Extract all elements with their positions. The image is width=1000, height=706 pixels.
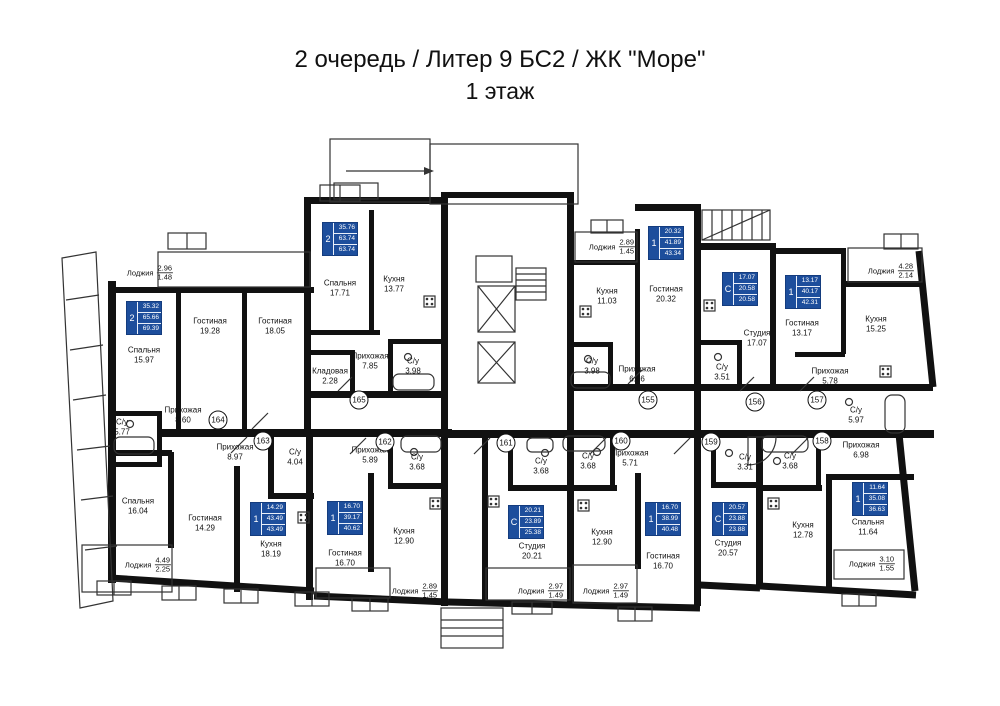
loggia-areas: 2.891.45: [618, 238, 635, 256]
room-label: Спальня11.64: [852, 517, 884, 536]
room-name: Кухня: [260, 539, 281, 549]
room-name: С/у: [114, 417, 130, 427]
room-area: 18.19: [260, 549, 281, 559]
room-area: 3.68: [580, 461, 596, 471]
stove: [880, 366, 891, 377]
room-area: 15.25: [865, 324, 886, 334]
room-area: 11.64: [852, 527, 884, 537]
room-name: Кухня: [393, 526, 414, 536]
loggia-areas: 2.971.49: [547, 582, 564, 600]
room-name: С/у: [533, 456, 549, 466]
room-label: Прихожая6.56: [618, 364, 655, 383]
room-label: С/у3.68: [409, 452, 425, 471]
room-name: Прихожая: [811, 366, 848, 376]
total-area: 23.88: [724, 525, 747, 535]
apartment-room-count: 1: [853, 483, 864, 515]
apartment-info-box-158: 111.6435.0836.63: [853, 483, 887, 515]
apartment-info-box-157: 113.1740.1742.31: [786, 276, 820, 308]
floor-area: 20.58: [734, 284, 757, 295]
room-label: Кухня12.78: [792, 520, 813, 539]
room-label: С/у3.68: [580, 451, 596, 470]
room-label: С/у3.98: [405, 356, 421, 375]
room-label: Кухня12.90: [393, 526, 414, 545]
room-label: Кладовая2.28: [312, 366, 348, 385]
room-area: 18.05: [258, 326, 292, 336]
living-area: 14.29: [262, 503, 285, 514]
floor-plan-page: 2 очередь / Литер 9 БС2 / ЖК "Море" 1 эт…: [0, 0, 1000, 706]
door-leaf: [252, 413, 268, 429]
wc-core: [476, 256, 512, 282]
room-area: 5.89: [351, 455, 388, 465]
room-area: 3.68: [533, 466, 549, 476]
room-name: Студия: [715, 538, 742, 548]
apartment-number-165: 165: [350, 391, 369, 410]
room-area: 3.68: [409, 462, 425, 472]
loggia-label: Лоджия4.492.25: [125, 556, 171, 574]
living-area: 13.17: [797, 276, 820, 287]
loggia-name: Лоджия: [518, 587, 545, 596]
apartment-number-156: 156: [746, 393, 765, 412]
room-label: Прихожая5.78: [811, 366, 848, 385]
room-name: Кухня: [591, 527, 612, 537]
living-area: 20.21: [520, 506, 543, 517]
room-name: С/у: [287, 447, 303, 457]
room-label: Прихожая8.60: [164, 405, 201, 424]
bathtub: [401, 436, 441, 452]
living-area: 20.57: [724, 503, 747, 514]
loggia-outline: [158, 252, 310, 287]
loggia-name: Лоджия: [392, 587, 419, 596]
loggia-name: Лоджия: [125, 561, 152, 570]
room-name: Кухня: [383, 274, 404, 284]
room-area: 6.98: [842, 450, 879, 460]
door-leaf: [674, 438, 690, 454]
room-label: Гостиная19.28: [193, 316, 227, 335]
loggia-label: Лоджия3.101.55: [849, 555, 895, 573]
room-area: 20.21: [519, 551, 546, 561]
floor-area: 43.49: [262, 514, 285, 525]
room-label: Кухня15.25: [865, 314, 886, 333]
room-area: 19.28: [193, 326, 227, 336]
room-name: Кухня: [596, 286, 617, 296]
apartment-info-box-161: С20.2123.8925.38: [509, 506, 543, 538]
bathtub: [885, 395, 905, 433]
loggia-areas: 4.492.25: [154, 556, 171, 574]
room-area: 3.98: [584, 366, 600, 376]
apartment-areas: 20.5723.8823.88: [724, 503, 747, 535]
apartment-info-box-160: 116.7038.9940.48: [646, 503, 680, 535]
apartment-room-count: 1: [328, 502, 339, 534]
stove: [488, 496, 499, 507]
apartment-areas: 16.7039.1740.62: [339, 502, 362, 534]
apartment-room-count: 1: [786, 276, 797, 308]
room-label: С/у3.98: [584, 356, 600, 375]
room-area: 13.17: [785, 328, 819, 338]
room-label: Прихожая8.97: [216, 442, 253, 461]
room-name: Гостиная: [785, 318, 819, 328]
apartment-room-count: С: [723, 273, 734, 305]
loggia-areas: 2.961.48: [156, 264, 173, 282]
floor-area: 38.99: [657, 514, 680, 525]
plan-title-line1: 2 очередь / Литер 9 БС2 / ЖК "Море": [0, 44, 1000, 76]
room-name: Студия: [519, 541, 546, 551]
room-area: 20.57: [715, 548, 742, 558]
apartment-areas: 11.6435.0836.63: [864, 483, 887, 515]
room-name: Прихожая: [618, 364, 655, 374]
living-area: 35.32: [138, 302, 161, 313]
room-area: 20.32: [649, 294, 683, 304]
sink: [715, 354, 722, 361]
room-area: 13.77: [383, 284, 404, 294]
loggia-name: Лоджия: [127, 269, 154, 278]
room-area: 5.78: [811, 376, 848, 386]
room-label: Прихожая6.98: [842, 440, 879, 459]
total-area: 40.48: [657, 525, 680, 535]
room-area: 3.98: [405, 366, 421, 376]
floor-area: 40.17: [797, 287, 820, 298]
floor-area: 41.89: [660, 238, 683, 249]
apartment-areas: 13.1740.1742.31: [797, 276, 820, 308]
floor-area: 63.74: [334, 234, 357, 245]
total-area: 25.38: [520, 528, 543, 538]
loggia-label: Лоджия2.891.45: [589, 238, 635, 256]
room-name: Прихожая: [351, 351, 388, 361]
room-label: С/у4.04: [287, 447, 303, 466]
room-name: Спальня: [122, 496, 154, 506]
room-area: 3.68: [782, 461, 798, 471]
room-label: С/у3.51: [714, 362, 730, 381]
room-name: С/у: [714, 362, 730, 372]
apartment-areas: 17.0720.5820.58: [734, 273, 757, 305]
room-label: Гостиная20.32: [649, 284, 683, 303]
living-area: 16.70: [657, 503, 680, 514]
apartment-areas: 35.7663.7463.74: [334, 223, 357, 255]
room-name: Спальня: [324, 278, 356, 288]
room-name: Кухня: [792, 520, 813, 530]
room-label: Спальня16.04: [122, 496, 154, 515]
room-label: С/у3.68: [782, 451, 798, 470]
loggia-area-half: 1.49: [547, 592, 564, 600]
left-balcony-strip: [62, 252, 113, 608]
living-area: 16.70: [339, 502, 362, 513]
room-area: 5.71: [611, 458, 648, 468]
room-area: 5.77: [114, 427, 130, 437]
apartment-info-box-165: 235.7663.7463.74: [323, 223, 357, 255]
room-label: Гостиная13.17: [785, 318, 819, 337]
apartment-room-count: 1: [649, 227, 660, 259]
total-area: 20.58: [734, 295, 757, 305]
room-area: 5.97: [848, 415, 864, 425]
room-label: С/у3.68: [533, 456, 549, 475]
room-label: Кухня11.03: [596, 286, 617, 305]
room-area: 14.29: [188, 523, 222, 533]
loggia-name: Лоджия: [868, 267, 895, 276]
room-name: С/у: [737, 452, 753, 462]
loggia-areas: 2.971.49: [612, 582, 629, 600]
room-name: Гостиная: [258, 316, 292, 326]
bathtub: [527, 438, 553, 452]
room-name: Спальня: [128, 345, 160, 355]
apartment-room-count: 1: [646, 503, 657, 535]
apartment-number-158: 158: [813, 432, 832, 451]
loggia-area-half: 1.55: [878, 565, 895, 573]
apartment-info-box-156: С17.0720.5820.58: [723, 273, 757, 305]
living-area: 11.64: [864, 483, 887, 494]
room-name: С/у: [584, 356, 600, 366]
apartment-number-161: 161: [497, 434, 516, 453]
room-label: Прихожая7.85: [351, 351, 388, 370]
room-area: 6.56: [618, 374, 655, 384]
room-name: Спальня: [852, 517, 884, 527]
room-name: С/у: [409, 452, 425, 462]
room-label: С/у3.31: [737, 452, 753, 471]
total-area: 63.74: [334, 245, 357, 255]
room-area: 17.71: [324, 288, 356, 298]
stove: [424, 296, 435, 307]
apartment-areas: 20.3241.8943.34: [660, 227, 683, 259]
loggia-areas: 4.282.14: [897, 262, 914, 280]
room-name: Гостиная: [649, 284, 683, 294]
loggia-area-half: 1.45: [421, 592, 438, 600]
room-label: Гостиная18.05: [258, 316, 292, 335]
room-area: 2.28: [312, 376, 348, 386]
total-area: 36.63: [864, 505, 887, 515]
room-area: 4.04: [287, 457, 303, 467]
room-label: Студия20.21: [519, 541, 546, 560]
living-area: 35.76: [334, 223, 357, 234]
room-label: Кухня18.19: [260, 539, 281, 558]
loggia-label: Лоджия2.971.49: [518, 582, 564, 600]
room-name: Гостиная: [646, 551, 680, 561]
apartment-info-box-159: С20.5723.8823.88: [713, 503, 747, 535]
room-area: 11.03: [596, 296, 617, 306]
sink: [726, 450, 733, 457]
stove: [578, 500, 589, 511]
apartment-info-box-155: 120.3241.8943.34: [649, 227, 683, 259]
loggia-areas: 3.101.55: [878, 555, 895, 573]
stairs: [516, 268, 546, 300]
apartment-number-159: 159: [702, 433, 721, 452]
canopy-arrow: [424, 167, 434, 175]
floor-area: 65.66: [138, 313, 161, 324]
room-label: Прихожая5.71: [611, 448, 648, 467]
living-area: 20.32: [660, 227, 683, 238]
plan-title-line2: 1 этаж: [0, 76, 1000, 107]
room-name: Прихожая: [164, 405, 201, 415]
total-area: 69.39: [138, 324, 161, 334]
room-label: Гостиная14.29: [188, 513, 222, 532]
room-label: Спальня15.97: [128, 345, 160, 364]
stove: [580, 306, 591, 317]
room-label: Спальня17.71: [324, 278, 356, 297]
room-name: Студия: [744, 328, 771, 338]
room-name: Гостиная: [193, 316, 227, 326]
apartment-areas: 20.2123.8925.38: [520, 506, 543, 538]
stove: [768, 498, 779, 509]
apartment-areas: 16.7038.9940.48: [657, 503, 680, 535]
room-area: 7.85: [351, 361, 388, 371]
apartment-number-160: 160: [612, 432, 631, 451]
loggia-name: Лоджия: [589, 243, 616, 252]
stove: [704, 300, 715, 311]
room-name: С/у: [782, 451, 798, 461]
room-name: Гостиная: [328, 548, 362, 558]
apartment-number-164: 164: [209, 411, 228, 430]
apartment-number-155: 155: [639, 391, 658, 410]
apartment-room-count: 2: [323, 223, 334, 255]
floor-area: 39.17: [339, 513, 362, 524]
loggia-label: Лоджия2.961.48: [127, 264, 173, 282]
loggia-area-half: 1.48: [156, 274, 173, 282]
room-area: 8.60: [164, 415, 201, 425]
apartment-room-count: 2: [127, 302, 138, 334]
apartment-number-163: 163: [254, 432, 273, 451]
apartment-areas: 14.2943.4943.49: [262, 503, 285, 535]
room-label: С/у5.77: [114, 417, 130, 436]
total-area: 42.31: [797, 298, 820, 308]
room-name: Кладовая: [312, 366, 348, 376]
loggia-name: Лоджия: [849, 560, 876, 569]
room-area: 12.90: [393, 536, 414, 546]
plan-title: 2 очередь / Литер 9 БС2 / ЖК "Море" 1 эт…: [0, 44, 1000, 107]
room-name: Гостиная: [188, 513, 222, 523]
apartment-info-box-162: 116.7039.1740.62: [328, 502, 362, 534]
bathtub: [762, 436, 808, 452]
apartment-number-162: 162: [376, 433, 395, 452]
apartment-info-box-164: 235.3265.6669.39: [127, 302, 161, 334]
room-name: С/у: [848, 405, 864, 415]
loggia-label: Лоджия2.891.45: [392, 582, 438, 600]
loggia-areas: 2.891.45: [421, 582, 438, 600]
room-area: 3.51: [714, 372, 730, 382]
apartment-room-count: 1: [251, 503, 262, 535]
loggia-name: Лоджия: [583, 587, 610, 596]
loggia-area-half: 1.45: [618, 248, 635, 256]
floor-area: 23.89: [520, 517, 543, 528]
room-area: 8.97: [216, 452, 253, 462]
room-area: 12.90: [591, 537, 612, 547]
room-area: 16.70: [328, 558, 362, 568]
room-label: Кухня12.90: [591, 527, 612, 546]
room-area: 16.04: [122, 506, 154, 516]
floor-area: 23.88: [724, 514, 747, 525]
room-area: 17.07: [744, 338, 771, 348]
room-area: 3.31: [737, 462, 753, 472]
room-label: С/у5.97: [848, 405, 864, 424]
loggia-label: Лоджия2.971.49: [583, 582, 629, 600]
room-label: Студия17.07: [744, 328, 771, 347]
bathtub: [393, 374, 434, 390]
apartment-room-count: С: [509, 506, 520, 538]
apartment-number-157: 157: [808, 391, 827, 410]
total-area: 40.62: [339, 524, 362, 534]
room-name: Кухня: [865, 314, 886, 324]
room-area: 16.70: [646, 561, 680, 571]
room-label: Кухня13.77: [383, 274, 404, 293]
room-label: Студия20.57: [715, 538, 742, 557]
floor-area: 35.08: [864, 494, 887, 505]
sink: [774, 458, 781, 465]
room-name: С/у: [405, 356, 421, 366]
room-label: Гостиная16.70: [646, 551, 680, 570]
apartment-areas: 35.3265.6669.39: [138, 302, 161, 334]
thin-details: [62, 139, 922, 648]
room-name: С/у: [580, 451, 596, 461]
room-name: Прихожая: [216, 442, 253, 452]
room-name: Прихожая: [842, 440, 879, 450]
loggia-area-half: 2.14: [897, 272, 914, 280]
loggia-label: Лоджия4.282.14: [868, 262, 914, 280]
total-area: 43.34: [660, 249, 683, 259]
total-area: 43.49: [262, 525, 285, 535]
loggia-area-half: 1.49: [612, 592, 629, 600]
apartment-info-box-163: 114.2943.4943.49: [251, 503, 285, 535]
apartment-room-count: С: [713, 503, 724, 535]
living-area: 17.07: [734, 273, 757, 284]
room-area: 15.97: [128, 355, 160, 365]
stove: [430, 498, 441, 509]
room-area: 12.78: [792, 530, 813, 540]
loggia-area-half: 2.25: [154, 566, 171, 574]
room-label: Гостиная16.70: [328, 548, 362, 567]
